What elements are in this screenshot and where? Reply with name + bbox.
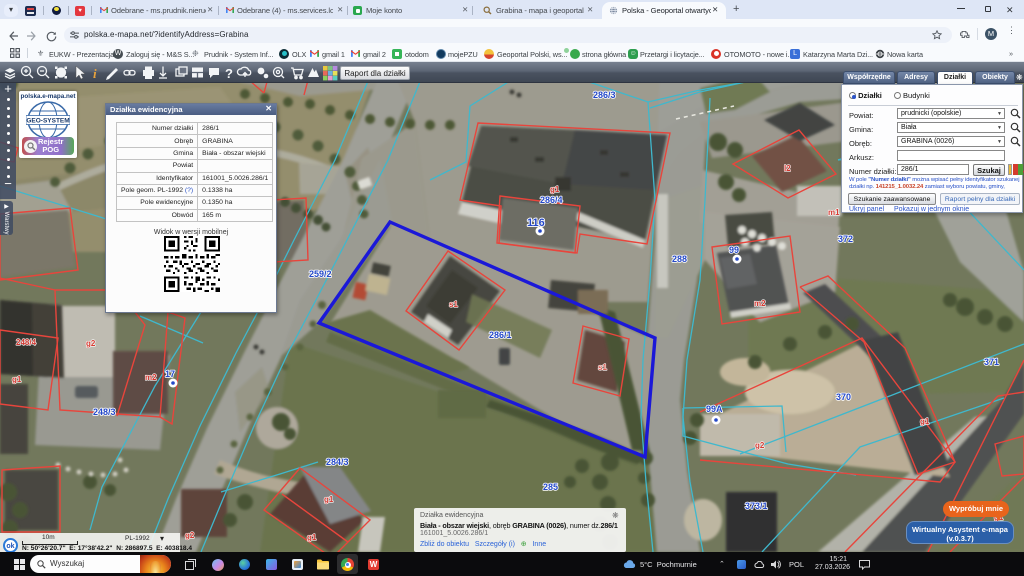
svg-text:g1: g1: [920, 417, 930, 426]
svg-text:m2: m2: [754, 299, 766, 308]
svg-text:259/2: 259/2: [309, 269, 332, 279]
svg-text:g2: g2: [755, 441, 765, 450]
svg-text:l2: l2: [784, 164, 791, 173]
svg-text:372: 372: [838, 234, 853, 244]
svg-text:g1: g1: [307, 533, 317, 542]
svg-text:g1: g1: [12, 375, 22, 384]
svg-text:284/3: 284/3: [326, 457, 349, 467]
svg-text:s1: s1: [598, 363, 607, 372]
svg-text:99: 99: [729, 245, 739, 255]
svg-text:99A: 99A: [706, 404, 723, 414]
svg-text:g2: g2: [86, 339, 96, 348]
svg-text:?: ?: [225, 66, 233, 81]
svg-text:285: 285: [543, 482, 558, 492]
svg-text:286/4: 286/4: [540, 195, 563, 205]
svg-text:g1: g1: [324, 495, 334, 504]
svg-text:g2: g2: [185, 531, 195, 540]
svg-text:m2: m2: [145, 373, 157, 382]
svg-text:288: 288: [672, 254, 687, 264]
svg-text:i: i: [93, 66, 97, 81]
svg-text:s1: s1: [449, 300, 458, 309]
svg-text:GEO-SYSTEM: GEO-SYSTEM: [26, 118, 69, 125]
svg-text:g1: g1: [550, 185, 560, 194]
svg-text:371: 371: [984, 357, 999, 367]
svg-text:286/3: 286/3: [593, 90, 616, 100]
svg-text:248/4: 248/4: [16, 338, 37, 347]
svg-text:248/3: 248/3: [93, 407, 116, 417]
svg-text:370: 370: [836, 392, 851, 402]
svg-text:17: 17: [165, 369, 175, 379]
svg-text:286/1: 286/1: [489, 330, 512, 340]
svg-text:373/1: 373/1: [745, 501, 768, 511]
svg-text:m1: m1: [828, 208, 840, 217]
